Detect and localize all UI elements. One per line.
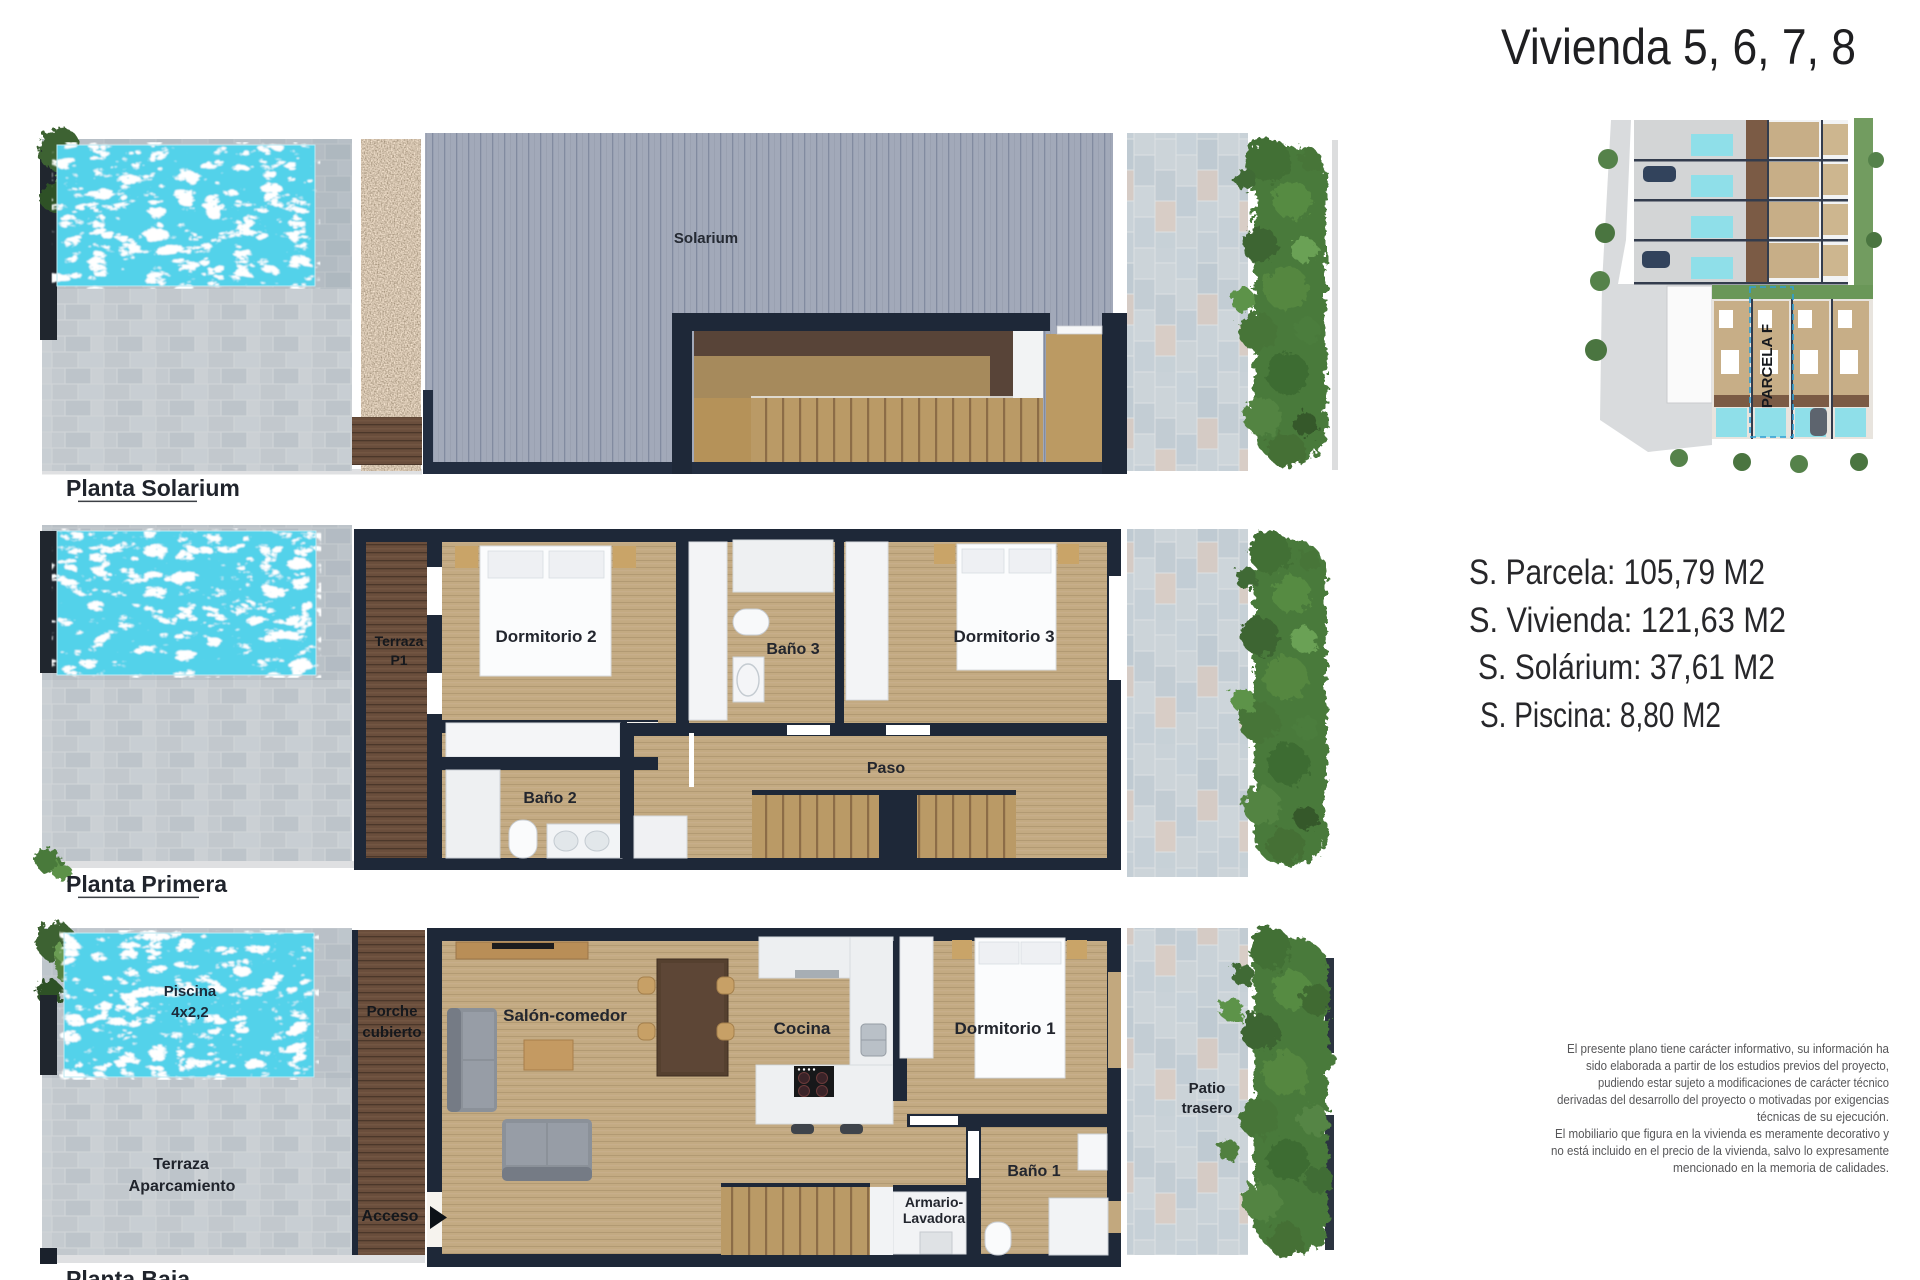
svg-text:Baño 3: Baño 3 xyxy=(766,641,819,658)
svg-text:Terraza: Terraza xyxy=(375,633,424,649)
svg-text:El presente plano tiene caráct: El presente plano tiene carácter informa… xyxy=(1567,1041,1890,1056)
svg-text:Dormitorio 3: Dormitorio 3 xyxy=(953,627,1054,646)
svg-text:S. Vivienda: 121,63 M2: S. Vivienda: 121,63 M2 xyxy=(1469,601,1786,640)
svg-text:Acceso: Acceso xyxy=(362,1208,419,1225)
svg-text:Baño 1: Baño 1 xyxy=(1007,1163,1060,1180)
svg-text:4x2,2: 4x2,2 xyxy=(171,1004,209,1021)
svg-text:derivadas del desarrollo del p: derivadas del desarrollo del proyecto o … xyxy=(1557,1092,1889,1107)
svg-text:Patio: Patio xyxy=(1189,1080,1226,1097)
svg-text:Solarium: Solarium xyxy=(674,230,738,247)
svg-text:Armario-: Armario- xyxy=(905,1194,964,1210)
svg-text:Aparcamiento: Aparcamiento xyxy=(129,1178,236,1195)
svg-text:pudiendo estar sujeto a modifi: pudiendo estar sujeto a modificaciones d… xyxy=(1598,1075,1889,1090)
svg-text:Planta Baja: Planta Baja xyxy=(66,1266,190,1280)
svg-text:PARCELA F: PARCELA F xyxy=(1759,324,1776,408)
svg-text:Paso: Paso xyxy=(867,760,905,777)
svg-text:S. Piscina: 8,80 M2: S. Piscina: 8,80 M2 xyxy=(1480,696,1721,735)
svg-text:Baño 2: Baño 2 xyxy=(523,790,576,807)
svg-text:S. Parcela: 105,79 M2: S. Parcela: 105,79 M2 xyxy=(1469,553,1765,592)
svg-text:El mobiliario que figura en la: El mobiliario que figura en la vivienda … xyxy=(1555,1126,1889,1141)
svg-text:cubierto: cubierto xyxy=(362,1024,421,1041)
svg-text:Lavadora: Lavadora xyxy=(903,1210,965,1226)
svg-text:Piscina: Piscina xyxy=(164,983,217,1000)
svg-text:trasero: trasero xyxy=(1182,1100,1233,1117)
svg-text:S. Solárium: 37,61 M2: S. Solárium: 37,61 M2 xyxy=(1478,648,1775,687)
svg-text:Planta Primera: Planta Primera xyxy=(66,871,227,897)
svg-text:Vivienda 5, 6, 7, 8: Vivienda 5, 6, 7, 8 xyxy=(1501,19,1856,75)
svg-text:Terraza: Terraza xyxy=(153,1156,209,1173)
svg-text:Cocina: Cocina xyxy=(774,1019,831,1038)
svg-text:Porche: Porche xyxy=(367,1003,418,1020)
svg-text:Dormitorio 1: Dormitorio 1 xyxy=(954,1019,1055,1038)
svg-text:no está incluido en el precio: no está incluido en el precio de la vivi… xyxy=(1551,1143,1889,1158)
svg-text:Salón-comedor: Salón-comedor xyxy=(503,1006,627,1025)
svg-text:Dormitorio 2: Dormitorio 2 xyxy=(495,627,596,646)
svg-text:Planta Solarium: Planta Solarium xyxy=(66,475,240,501)
svg-text:técnicas de su ejecución.: técnicas de su ejecución. xyxy=(1757,1109,1889,1124)
svg-text:sido elaborada a partir de los: sido elaborada a partir de los estudios … xyxy=(1586,1058,1889,1073)
svg-text:P1: P1 xyxy=(390,652,407,668)
svg-text:mencionado en la memoria de ca: mencionado en la memoria de calidades. xyxy=(1673,1160,1889,1175)
